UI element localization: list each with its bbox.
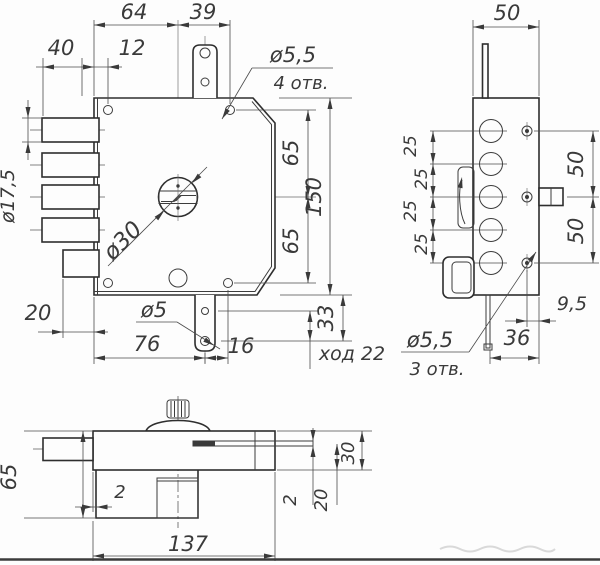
dim-50-width: 50 <box>494 1 521 25</box>
dim-65-upper: 65 <box>279 140 303 167</box>
deadbolt-2 <box>42 153 99 177</box>
lock-body-outline <box>94 98 275 295</box>
cylinder-housing <box>157 478 198 518</box>
dim-12: 12 <box>119 36 146 60</box>
top-rod <box>483 44 489 98</box>
note-dia-5-5-side: ø5,5 <box>406 328 453 352</box>
dim-33: 33 <box>314 305 338 332</box>
deadbolt-3 <box>42 185 99 209</box>
dim-30: 30 <box>338 442 359 465</box>
dim-pitch-1: 25 <box>401 135 421 157</box>
dim-20-bottom-view: 20 <box>311 489 332 512</box>
bottom-case-outline <box>96 470 198 518</box>
side-body-outline <box>473 98 539 295</box>
latch-bolt <box>63 250 99 277</box>
side-bar-mount <box>193 441 215 446</box>
side-view <box>430 44 563 350</box>
dim-65-bottom-view: 65 <box>0 464 21 491</box>
dim-bolt-diameter: ø17,5 <box>0 169 19 224</box>
dim-pitch-4: 25 <box>412 233 432 255</box>
side-latch-block <box>443 257 474 298</box>
dim-pitch-3: 25 <box>401 200 421 222</box>
dim-65-lower: 65 <box>279 228 303 255</box>
dim-64: 64 <box>121 0 148 24</box>
dim-16: 16 <box>228 334 255 358</box>
watermark-smudge <box>440 547 555 552</box>
bottom-body-outline <box>93 431 275 470</box>
side-lever <box>458 167 474 228</box>
dim-76: 76 <box>134 332 161 356</box>
keyhole-dot-top <box>176 184 179 187</box>
lock-technical-drawing: 64 39 40 12 ø5,5 4 отв. ø17,5 ø30 <box>0 0 600 565</box>
bottom-mounting-tab <box>195 295 215 351</box>
note-dia-5-5: ø5,5 <box>269 43 316 67</box>
dim-36: 36 <box>504 326 531 350</box>
note-dia-5: ø5 <box>140 298 167 322</box>
front-view <box>30 20 316 363</box>
dim-150: 150 <box>302 177 326 217</box>
dim-2-left: 2 <box>114 482 125 503</box>
dim-50-upper: 50 <box>564 151 588 178</box>
dim-20: 20 <box>25 301 52 325</box>
bottom-rod-foot <box>484 344 492 350</box>
drawing-canvas: 64 39 40 12 ø5,5 4 отв. ø17,5 ø30 <box>0 0 600 565</box>
bottom-view <box>33 396 313 528</box>
dim-137: 137 <box>168 532 209 556</box>
dim-50-lower: 50 <box>564 218 588 245</box>
note-4-holes: 4 отв. <box>273 73 328 94</box>
dim-39: 39 <box>190 0 217 24</box>
deadbolt-1 <box>42 118 99 142</box>
dim-pitch-2: 25 <box>412 168 432 190</box>
thumb-turn-knob <box>146 400 210 431</box>
dim-stroke: ход 22 <box>318 343 385 365</box>
deadbolt-4 <box>42 218 99 242</box>
note-3-holes: 3 отв. <box>409 359 464 380</box>
bottom-deadbolt <box>43 438 93 461</box>
dim-9-5: 9,5 <box>557 293 587 315</box>
keyhole-dot-bottom <box>176 206 179 209</box>
top-mounting-tab <box>193 45 217 98</box>
dim-40: 40 <box>48 36 75 60</box>
dim-2-right: 2 <box>280 494 301 505</box>
